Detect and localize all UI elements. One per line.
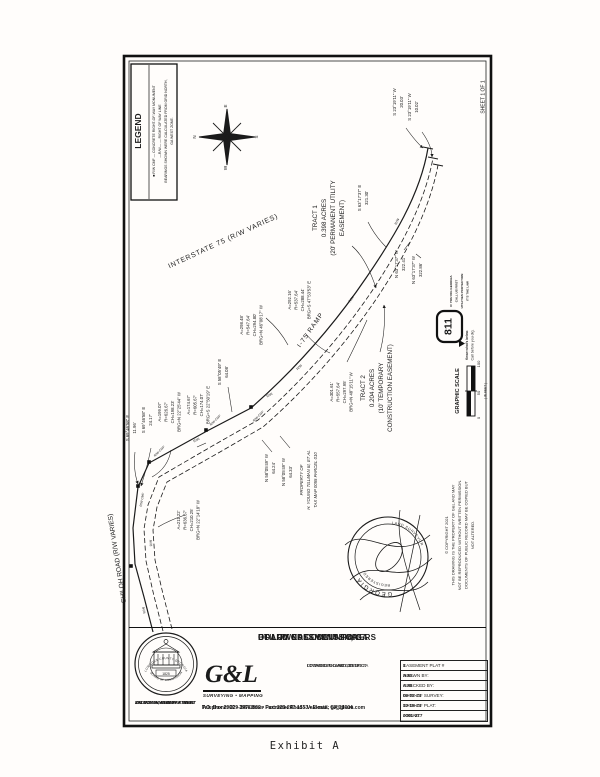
call811-line1: IF YOU DIG GEORGIA: [449, 275, 453, 307]
exhibit-caption: Exhibit A: [245, 740, 365, 752]
rw-label: R/W: [149, 539, 154, 547]
leader-line: [197, 443, 206, 447]
curve-data-line: R=537.64': [294, 290, 299, 310]
rw-label: R/W: [141, 606, 146, 614]
distance-label: 322.86': [418, 263, 423, 277]
curve-data-line: R=636.67': [183, 510, 188, 530]
curve-data-line: BRG=S 47°53'53" E: [307, 281, 312, 319]
call811-tagline2: Call before you dig.: [471, 330, 475, 361]
table-row: EASEMENT PLAT #1: [401, 661, 487, 671]
plat-info-table: EASEMENT PLAT #1 DRAWN BY:AJG CHECKED BY…: [400, 660, 488, 722]
curve-data-line: CH=198.23': [170, 400, 175, 423]
bearing-label: S 23°19'11" W: [392, 87, 397, 115]
call811-tagline1: Know what's below.: [465, 330, 469, 360]
tract1-easement-type2: EASEMENT): [339, 200, 346, 236]
row-value: 10-19-21: [403, 701, 421, 711]
curve-data-line: CH=210.25': [189, 508, 194, 531]
leader-line: [406, 128, 423, 148]
scale-tick-0: 0: [476, 416, 481, 419]
curve-data-line: R=605.67': [193, 395, 198, 415]
property-of-label: PROPERTY OF: [299, 464, 304, 495]
cmf-markers: [129, 405, 253, 568]
table-row: CHECKED BY:AJG: [401, 681, 487, 691]
copyright-line: DOCUMENTS OF PUBLIC RECORD MAY BE COPIED…: [464, 481, 469, 589]
distance-label: 20.03': [399, 96, 404, 108]
curve-data-line: CH=288.44': [300, 288, 305, 311]
distance-label: 322.41': [401, 257, 406, 271]
rw-label: R/W: [348, 295, 356, 303]
plat-title-line3: OF LOWNDES COUNTY, GA: [258, 633, 368, 643]
row-value: 1: [403, 661, 406, 671]
scale-tick-50: 50: [476, 390, 481, 395]
distance-label: 11.96': [132, 422, 137, 433]
gl-logo-underline: [203, 690, 261, 692]
bearing-label: S 69°46'58" E: [141, 407, 146, 434]
curve-data-line: BRG=N 46°08'17" W: [259, 304, 264, 345]
curve-data-line: A=174.67': [186, 395, 191, 415]
rw-cmf-label: R/W CMF: [153, 444, 166, 457]
table-row: DATE OF SURVEY:06-02-21: [401, 691, 487, 701]
tract1-easement-type: (20' PERMANENT UTILITY: [330, 180, 337, 255]
gl-logo-subtitle: SURVEYING • MAPPING: [193, 693, 273, 698]
call811-line3: UTILITIES PROTECTION: [460, 274, 464, 309]
leader-line: [141, 448, 151, 486]
bearing-label: N 63°17'37" W: [411, 255, 416, 284]
copyright-line: NOT ALTERED.: [470, 521, 475, 550]
bearing-label: N 58°05'49" W: [264, 453, 269, 482]
legend-item-bearings2: GA WEST ZONE.: [170, 117, 174, 145]
row-value: AJG: [403, 671, 412, 681]
gl-surveying-logo: G&L: [205, 662, 258, 688]
call811-number: 811: [443, 318, 455, 335]
distance-label: 24.17': [148, 414, 153, 426]
north-arrow-compass: N E S W: [192, 104, 259, 170]
curve-data-line: A=301.61': [329, 382, 334, 402]
bearing-label: S 23°19'11" W: [407, 92, 412, 120]
curve-data-line: A=199.07': [157, 402, 162, 422]
frame-inner-border: [129, 61, 486, 721]
rw-label: R/W: [266, 391, 274, 398]
distance-label: 321.30': [364, 191, 369, 205]
curve-data-line: CH=174.07': [199, 393, 204, 416]
row-label: EASEMENT PLAT #: [403, 661, 444, 671]
surveyor-seal: GEORGIA REGISTERED LAND SURVEYOR: [345, 510, 432, 612]
scale-bar-fill: [467, 391, 471, 416]
rw-label: R/W: [193, 436, 201, 443]
scale-tick-100: 100: [476, 360, 481, 367]
curve-data-line: BRG=N 22°14'18" W: [196, 499, 201, 540]
interstate-75-label: INTERSTATE 75 (R/W VARIES): [167, 213, 279, 270]
curve-data-line: R=557.64': [336, 382, 341, 402]
leader-line: [266, 318, 288, 345]
leader-line: [416, 254, 421, 258]
distance-label: 10.02': [414, 101, 419, 113]
copyright-line: THIS DRAWING IS THE PROPERTY OF G&L AND …: [451, 484, 456, 585]
legend-item-bearings: BEARINGS SHOWN WERE CALCULATED FROM GRID…: [164, 79, 168, 182]
tract2-acres: 0.204 ACRES: [369, 369, 376, 407]
tract2-name: TRACT 2: [360, 375, 367, 401]
leader-line: [262, 440, 272, 452]
curve-data-line: BRG=N 22°25'44" W: [177, 391, 182, 432]
property-tax-parcel: TAX MAP 0055 PARCEL 010: [313, 452, 318, 508]
title-block: UTILITY EASEMENT FOR: BOARD OF COMMISSIO…: [129, 627, 486, 722]
curve-data-line: BRG=S 22°50'19" E: [206, 386, 211, 424]
call811-line4: IT'S THE LAW: [466, 281, 470, 301]
leader-line: [380, 305, 385, 352]
frame-outer-border: [124, 56, 491, 726]
cmf-monument-marker: [249, 405, 253, 409]
row-value: AJG: [403, 681, 412, 691]
curve-data-line: A=292.16': [287, 290, 292, 310]
property-owner-name: H. YOUNG TILLMAN III, ET AL: [306, 450, 311, 510]
copyright-line: NOT BE REPRODUCED WITHOUT WRITTEN PERMIS…: [457, 480, 462, 591]
table-row: DRAWN BY:AJG: [401, 671, 487, 681]
line-end-tick-2: [428, 157, 438, 159]
distance-label: 64.24': [271, 462, 276, 474]
tract2-easement-type: (10' TEMPORARY: [378, 363, 385, 414]
scanned-plat-page: { "page": { "sheet_label": "SHEET 1 OF 1…: [0, 0, 600, 777]
bearing-label: S 63°17'37" E: [357, 185, 362, 212]
located-line3: LOWNDES COUNTY, GEORGIA: [307, 663, 368, 669]
curve-data-line: R=626.67': [164, 402, 169, 422]
distance-label: 64.33': [288, 466, 293, 478]
legend-title: LEGEND: [133, 113, 143, 148]
compass-e-label: E: [223, 104, 228, 107]
table-row: DATE OF PLAT:10-19-21: [401, 701, 487, 711]
rw-cmf-label: R/W CMF: [139, 492, 146, 508]
cmf-monument-marker: [204, 428, 208, 432]
distance-label: 64.08': [224, 366, 229, 378]
leader-line: [368, 222, 386, 247]
compass-w-label: W: [223, 165, 228, 170]
leader-line: [134, 452, 138, 484]
legend: LEGEND ■ R/W CMF — CONCRETE RIGHT-OF-WAY…: [131, 64, 177, 200]
table-row: JOB No.0001-277: [401, 711, 487, 721]
cmf-monument-marker: [136, 484, 140, 488]
curve-data-line: R=547.64': [246, 315, 251, 335]
cmf-monument-marker: [129, 564, 133, 568]
dept-line3: VALDOSTA, GEORGIA 31601: [135, 700, 194, 707]
scale-units-label: ( IN FEET ): [484, 383, 488, 399]
sheet-number-label: SHEET 1 OF 1: [481, 80, 487, 113]
curve-data-line: A=211.22': [176, 510, 181, 529]
legend-item-cmf: ■ R/W CMF — CONCRETE RIGHT-OF-WAY MONUME…: [152, 84, 156, 176]
compass-n-label: N: [192, 135, 197, 138]
row-value: 06-02-21: [403, 691, 421, 701]
leader-line: [228, 387, 232, 412]
call811-line2: CALL US FIRST: [455, 280, 459, 303]
curve-data-line: A=298.48': [239, 315, 244, 335]
tract1-name: TRACT 1: [312, 205, 319, 231]
graphic-scale: GRAPHIC SCALE 100 50 0 ( IN FEET ): [455, 360, 488, 419]
bearing-label: S 58°05'49" E: [217, 359, 222, 386]
bearing-label: N 58°05'49" W: [281, 457, 286, 486]
rw-cmf-label: R/W CMF: [252, 409, 265, 422]
compass-s-label: S: [254, 135, 259, 138]
curve-data-line: CH=297.95': [342, 380, 347, 403]
curve-data-line: CH=294.80': [252, 313, 257, 336]
scale-bar-fill: [471, 366, 475, 391]
tract2-easement-type2: CONSTRUCTION EASEMENT): [387, 344, 394, 432]
bearing-label: S 69°46'58" E: [125, 415, 130, 442]
call-811-logo: IF YOU DIG GEORGIA CALL US FIRST UTILITI…: [437, 274, 475, 361]
surveyor-address-line2: Telephone: 229-247-1552 • Fax: 229-247-1…: [202, 705, 365, 713]
copyright-line: © COPYRIGHT 2021: [444, 515, 449, 554]
graphic-scale-title: GRAPHIC SCALE: [455, 368, 461, 414]
tract1-acres: 0.398 ACRES: [321, 199, 328, 237]
curve-data-line: BRG=N 48°15'11" W: [349, 371, 354, 411]
bearing-label: N 63°17'37" W: [394, 249, 399, 278]
legend-item-rw-line: —R/W— — RIGHT OF WAY LINE: [158, 104, 162, 158]
leader-line: [280, 436, 290, 448]
row-value: 0001-277: [403, 711, 422, 721]
